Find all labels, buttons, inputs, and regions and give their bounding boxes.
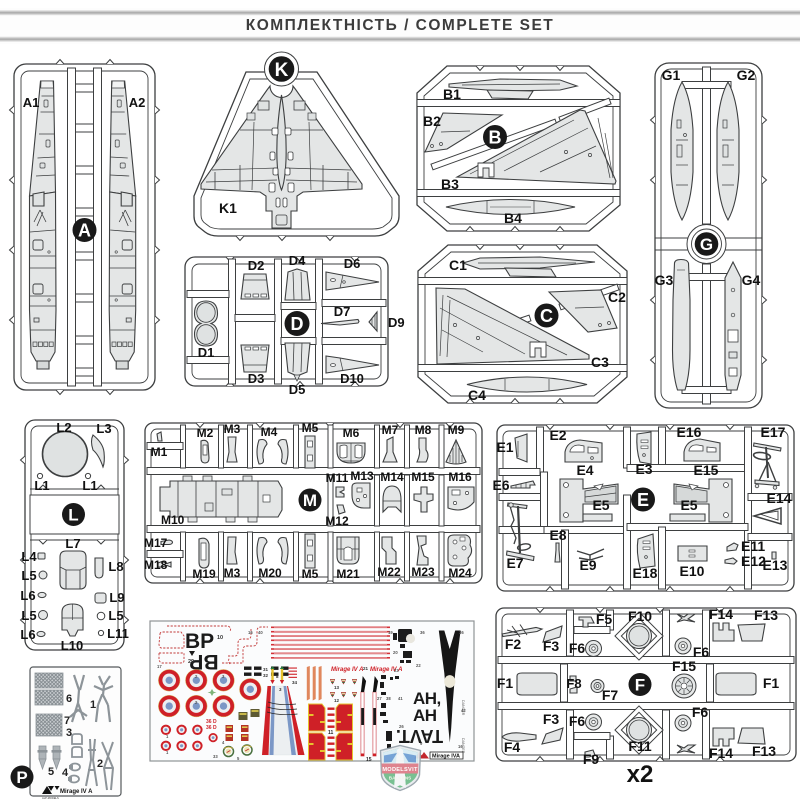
svg-text:M5: M5 (302, 421, 319, 435)
svg-text:L8: L8 (108, 559, 123, 574)
svg-text:D10: D10 (340, 371, 364, 386)
svg-text:C3: C3 (591, 354, 609, 370)
svg-text:M: M (303, 491, 317, 510)
svg-text:D2: D2 (248, 258, 265, 273)
svg-text:G: G (700, 235, 713, 254)
svg-text:D5: D5 (289, 382, 306, 397)
svg-text:L9: L9 (109, 590, 124, 605)
svg-text:36 D: 36 D (206, 725, 217, 731)
svg-text:F3: F3 (543, 711, 560, 727)
svg-text:L1: L1 (82, 478, 97, 493)
svg-text:D6: D6 (344, 256, 361, 271)
svg-text:D4: D4 (289, 253, 306, 268)
svg-text:E2: E2 (549, 427, 566, 443)
svg-text:E16: E16 (677, 424, 702, 440)
svg-text:L2: L2 (56, 420, 71, 435)
svg-text:E4: E4 (576, 462, 593, 478)
svg-text:B1: B1 (443, 86, 461, 102)
svg-text:M21: M21 (336, 567, 360, 581)
svg-text:7: 7 (64, 715, 70, 727)
svg-text:K: K (275, 60, 289, 81)
svg-text:E7: E7 (506, 555, 523, 571)
svg-text:M7: M7 (382, 423, 399, 437)
svg-text:B: B (489, 127, 502, 147)
svg-text:4: 4 (62, 767, 69, 779)
svg-text:21: 21 (363, 666, 369, 671)
svg-text:M20: M20 (258, 566, 282, 580)
svg-text:M12: M12 (325, 514, 349, 528)
svg-text:F: F (635, 676, 645, 695)
svg-text:F14: F14 (709, 606, 733, 622)
svg-text:MODELSVIT: MODELSVIT (382, 767, 418, 773)
svg-text:L: L (68, 506, 78, 525)
svg-text:F4: F4 (504, 739, 521, 755)
svg-text:19: 19 (388, 630, 393, 635)
svg-text:M24: M24 (448, 566, 472, 580)
svg-text:M13: M13 (350, 469, 374, 483)
svg-text:29: 29 (188, 659, 194, 665)
svg-text:41: 41 (398, 696, 403, 701)
svg-text:15: 15 (366, 757, 372, 763)
svg-text:1: 1 (90, 699, 96, 711)
svg-text:34: 34 (292, 680, 298, 685)
svg-text:M18: M18 (144, 558, 168, 572)
svg-text:M2: M2 (197, 426, 214, 440)
svg-text:22: 22 (416, 663, 421, 668)
svg-text:G2: G2 (737, 67, 756, 83)
svg-text:E6: E6 (492, 477, 509, 493)
svg-text:L5: L5 (108, 608, 123, 623)
svg-text:M6: M6 (343, 426, 360, 440)
svg-text:M8: M8 (415, 423, 432, 437)
svg-text:F15: F15 (672, 658, 696, 674)
svg-text:38: 38 (386, 696, 391, 701)
svg-text:E8: E8 (549, 527, 566, 543)
svg-text:M23: M23 (411, 565, 435, 579)
svg-text:A1: A1 (23, 95, 40, 110)
svg-text:G3: G3 (655, 272, 674, 288)
svg-text:M3: M3 (224, 422, 241, 436)
svg-text:E5: E5 (592, 497, 609, 513)
svg-text:M22: M22 (377, 565, 401, 579)
svg-text:F3: F3 (543, 638, 560, 654)
svg-text:2: 2 (97, 758, 103, 770)
svg-text:L3: L3 (96, 421, 111, 436)
svg-text:L5: L5 (21, 568, 36, 583)
svg-text:36: 36 (459, 630, 464, 635)
svg-text:M9: M9 (448, 423, 465, 437)
svg-text:M15: M15 (411, 470, 435, 484)
svg-text:F13: F13 (754, 607, 778, 623)
svg-text:L1: L1 (34, 478, 49, 493)
svg-text:E3: E3 (635, 461, 652, 477)
svg-text:M4: M4 (261, 425, 278, 439)
svg-text:M5: M5 (302, 567, 319, 581)
svg-text:x2: x2 (627, 761, 654, 788)
svg-text:16: 16 (248, 630, 253, 635)
svg-text:F6: F6 (569, 713, 586, 729)
svg-text:TAVT.: TAVT. (396, 726, 443, 746)
svg-text:P: P (16, 768, 27, 787)
svg-text:D3: D3 (248, 371, 265, 386)
svg-text:D: D (291, 314, 304, 334)
svg-text:D7: D7 (334, 304, 351, 319)
svg-text:F6: F6 (569, 640, 586, 656)
svg-text:Mirage IV A: Mirage IV A (60, 789, 93, 795)
svg-text:10: 10 (217, 635, 223, 641)
svg-text:M10: M10 (161, 513, 185, 527)
svg-text:L4: L4 (21, 549, 37, 564)
svg-text:L6: L6 (20, 627, 35, 642)
svg-text:L11: L11 (107, 626, 129, 641)
svg-text:F1: F1 (497, 675, 514, 691)
svg-text:F8: F8 (566, 676, 581, 691)
svg-text:M16: M16 (448, 470, 472, 484)
svg-text:E11: E11 (741, 538, 765, 554)
svg-text:27: 27 (377, 696, 382, 701)
svg-text:B3: B3 (441, 176, 459, 192)
svg-text:E15: E15 (694, 462, 719, 478)
svg-text:F13: F13 (752, 743, 776, 759)
svg-text:L5: L5 (21, 608, 36, 623)
svg-text:17: 17 (157, 664, 162, 669)
svg-text:C2: C2 (608, 289, 626, 305)
svg-text:12: 12 (334, 698, 340, 703)
svg-text:F10: F10 (628, 608, 652, 624)
svg-text:3: 3 (66, 727, 72, 739)
svg-text:E9: E9 (579, 557, 596, 573)
svg-text:M1: M1 (151, 445, 168, 459)
svg-text:G4: G4 (742, 272, 761, 288)
svg-text:16: 16 (458, 744, 463, 749)
svg-text:A2: A2 (129, 95, 146, 110)
svg-text:13: 13 (334, 685, 340, 690)
svg-text:Mirage IV A: Mirage IV A (331, 667, 363, 673)
svg-text:M11: M11 (326, 471, 349, 485)
svg-text:M3: M3 (224, 566, 241, 580)
svg-text:КОМПЛЕКТНІСТЬ / COMPLETE SET: КОМПЛЕКТНІСТЬ / COMPLETE SET (246, 17, 555, 34)
svg-text:20: 20 (393, 650, 398, 655)
svg-text:M19: M19 (192, 567, 216, 581)
svg-text:F7: F7 (602, 687, 619, 703)
svg-text:32: 32 (263, 673, 269, 678)
svg-text:42: 42 (461, 708, 466, 713)
svg-text:C1: C1 (449, 257, 467, 273)
svg-text:11: 11 (328, 730, 334, 736)
svg-text:M17: M17 (144, 536, 168, 550)
svg-text:E14: E14 (767, 490, 792, 506)
svg-text:BP: BP (185, 630, 214, 653)
svg-text:F5: F5 (596, 611, 613, 627)
svg-text:K1: K1 (219, 200, 237, 216)
svg-text:F2: F2 (505, 636, 522, 652)
svg-text:E17: E17 (761, 424, 786, 440)
svg-text:6: 6 (66, 693, 72, 705)
svg-text:M14: M14 (380, 470, 404, 484)
svg-text:D1: D1 (198, 345, 215, 360)
svg-text:B4: B4 (504, 210, 522, 226)
svg-text:E10: E10 (680, 563, 705, 579)
svg-text:33: 33 (213, 754, 218, 759)
svg-text:5: 5 (48, 766, 54, 778)
svg-text:E18: E18 (633, 565, 658, 581)
svg-text:C4: C4 (468, 387, 486, 403)
svg-text:E1: E1 (496, 439, 513, 455)
svg-text:ALP-MODELS: ALP-MODELS (42, 796, 59, 800)
svg-text:23: 23 (394, 668, 399, 673)
svg-text:40: 40 (258, 630, 263, 635)
svg-text:36: 36 (420, 630, 425, 635)
svg-text:C: C (540, 306, 553, 326)
svg-text:L6: L6 (20, 588, 35, 603)
svg-text:AH: AH (413, 706, 437, 725)
svg-text:F14: F14 (709, 745, 733, 761)
svg-text:B2: B2 (423, 113, 441, 129)
svg-text:F11: F11 (628, 738, 652, 754)
svg-text:31: 31 (263, 667, 269, 672)
svg-text:G1: G1 (662, 67, 681, 83)
svg-text:E5: E5 (680, 497, 697, 513)
svg-text:Mirage IVA: Mirage IVA (432, 754, 460, 760)
svg-text:L10: L10 (61, 638, 83, 653)
svg-text:L7: L7 (65, 536, 80, 551)
svg-text:F1: F1 (763, 675, 780, 691)
svg-text:F6: F6 (692, 704, 709, 720)
svg-text:E13: E13 (763, 557, 788, 573)
svg-text:BALKANS: BALKANS (389, 776, 411, 781)
svg-text:D9: D9 (388, 315, 405, 330)
svg-text:E: E (637, 490, 649, 510)
svg-text:F9: F9 (583, 751, 600, 767)
svg-text:A: A (78, 220, 91, 240)
